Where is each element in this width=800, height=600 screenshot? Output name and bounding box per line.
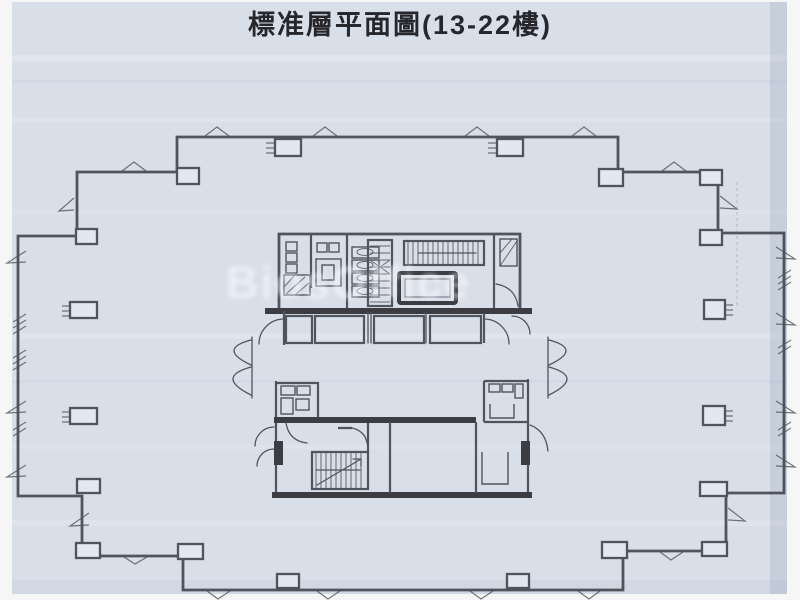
corridor-scallops: [233, 337, 567, 398]
sink-row: [352, 247, 379, 297]
column: [70, 302, 97, 318]
door-arc: [286, 423, 307, 443]
column: [602, 542, 627, 558]
window-marks: [7, 127, 795, 599]
column: [70, 408, 97, 424]
column: [507, 574, 529, 588]
pantry-lower-right: [489, 384, 523, 418]
plan-title: 標准層平面圖(13-22樓): [0, 3, 800, 42]
floor-plan-drawing: [0, 0, 800, 600]
core-column: [274, 441, 283, 465]
service-elevator: [399, 273, 456, 303]
elevator-bank: [259, 311, 530, 345]
restroom-lower-left: [281, 386, 310, 414]
column: [178, 544, 203, 559]
column: [76, 229, 97, 244]
core-column: [521, 441, 530, 465]
column: [700, 482, 727, 496]
door-arc: [512, 316, 530, 334]
column: [76, 543, 100, 558]
column: [177, 168, 199, 184]
staircase-upper: [404, 241, 484, 265]
column: [700, 170, 722, 185]
column: [277, 574, 299, 588]
restroom-upper: [284, 242, 379, 297]
door-arc: [484, 319, 509, 344]
door-arc: [257, 449, 274, 466]
core-upper: [265, 182, 737, 311]
door-arc: [259, 319, 284, 344]
column: [77, 479, 100, 493]
column: [702, 542, 727, 556]
counter: [482, 452, 508, 484]
closet-hatched: [500, 239, 517, 266]
core-lower: [255, 379, 548, 497]
floor-plan-scan: BiosOffice 標准層平面圖(13-22樓): [0, 0, 800, 600]
column: [704, 300, 725, 319]
column: [497, 139, 523, 156]
column: [275, 139, 301, 156]
machine-room-walls: [390, 422, 476, 493]
column: [700, 230, 722, 245]
door-arc: [255, 427, 274, 446]
column: [703, 406, 725, 425]
staircase-lower: [312, 452, 368, 489]
door-arc: [496, 284, 518, 306]
column: [599, 169, 623, 186]
toilet-stall: [316, 259, 341, 286]
